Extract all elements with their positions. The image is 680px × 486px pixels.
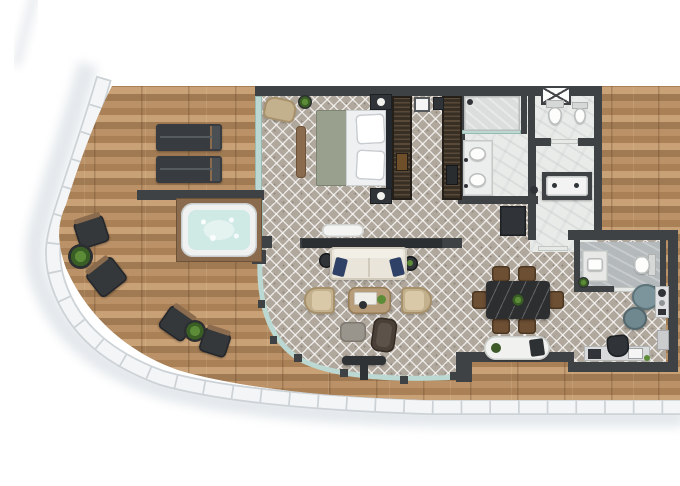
powder-plant [578, 277, 589, 288]
east-wall-upper [594, 86, 602, 238]
armchair-seat [405, 291, 424, 310]
powder-toilet [634, 253, 656, 277]
minibar-sink [659, 300, 665, 306]
dining-chair [492, 318, 510, 334]
toilet [546, 100, 564, 125]
hall-cabinet [500, 206, 526, 236]
dining-chair [548, 291, 564, 309]
bed-pillow [355, 149, 386, 180]
dining-chair [518, 318, 536, 334]
tub-faucet [552, 183, 557, 188]
ottoman [340, 322, 366, 342]
wardrobe-row [442, 96, 462, 200]
wardrobe-drawers [447, 166, 457, 184]
living-sw-corner-wall [456, 352, 472, 382]
tv-bench [322, 224, 364, 237]
east-wall-lower [668, 238, 678, 372]
nightstand [370, 94, 392, 110]
desk-monitor [588, 349, 601, 359]
armchair [401, 287, 432, 314]
bathtub [546, 176, 588, 196]
bidet [572, 102, 588, 125]
sink [469, 173, 486, 187]
wc-door-threshold [551, 139, 578, 144]
wardrobe-drawers [397, 154, 407, 170]
dining-chair [518, 266, 536, 282]
sun-lounger [156, 124, 222, 151]
kettle [658, 289, 666, 297]
printer [628, 348, 643, 359]
hot-tub-shell [181, 203, 257, 257]
storage-box [414, 97, 430, 112]
right-wing-south-wall [568, 362, 678, 372]
sofa-seat-split [368, 258, 370, 277]
sofa-pillow [389, 257, 405, 277]
glass-post [270, 336, 277, 344]
media-console [302, 239, 442, 247]
faucet [464, 184, 468, 188]
shower-head [467, 99, 473, 105]
hot-tub-water [188, 210, 250, 250]
bedroom-bench [296, 126, 306, 178]
bidet-bowl [574, 108, 586, 124]
lounge-chair-cushion [375, 322, 392, 348]
desk-plant [644, 355, 650, 361]
wardrobe-row [392, 96, 412, 200]
storage-box [433, 97, 444, 110]
bathroom-stool [530, 186, 538, 194]
swivel-chair [623, 307, 647, 330]
powder-east-wall [660, 240, 666, 292]
sofa-back-cushions [334, 249, 403, 258]
bedroom-glass-wall [255, 96, 262, 192]
daybed-cushion [529, 338, 545, 357]
faucet [464, 158, 468, 162]
wall-shelf [657, 330, 669, 350]
dining-chair [492, 266, 510, 282]
armchair [304, 287, 335, 314]
table-lamp [377, 98, 385, 106]
terrace-plant-table [184, 320, 206, 342]
sink [469, 147, 486, 161]
wc-west-wall [528, 96, 535, 144]
pedestal-table-stem [360, 365, 368, 380]
glass-post [258, 300, 265, 308]
bedroom-plant [298, 95, 312, 109]
minibar [655, 286, 669, 318]
speaker-plant [407, 260, 413, 266]
minibar-tray [658, 309, 666, 315]
right-wing-north-wall [568, 230, 678, 240]
pedestal-table-top [342, 356, 386, 365]
bathtub-surround [542, 172, 592, 200]
bed-pillow [355, 113, 386, 144]
dining-centerpiece-plant [511, 293, 525, 307]
coffee-table-plant [377, 295, 386, 304]
shower-east-wall [521, 96, 527, 134]
glass-post [294, 354, 302, 362]
shower [464, 96, 520, 131]
nightstand [370, 188, 392, 204]
hot-tub-wood-frame [176, 198, 262, 262]
bed-blanket [316, 110, 348, 186]
sun-lounger [156, 156, 222, 183]
glass-post [400, 376, 408, 384]
sofa-pillow [332, 257, 348, 277]
terrace-plant-table [68, 244, 93, 269]
dining-table [486, 281, 550, 319]
toilet-bowl [548, 107, 562, 125]
glass-post [340, 369, 348, 377]
daybed [484, 336, 550, 360]
floor-plan-canvas [0, 0, 680, 486]
powder-sink [587, 258, 603, 271]
double-vanity [463, 140, 493, 196]
tub-faucet [574, 183, 579, 188]
coffee-table [348, 287, 391, 314]
hall-threshold [538, 246, 568, 251]
glass-post [450, 372, 458, 380]
sofa [330, 247, 407, 280]
armchair-seat [312, 291, 331, 310]
daybed-plant [491, 343, 501, 353]
coffee-table-cup [359, 301, 367, 309]
wc-south-wall-left [535, 138, 551, 146]
powder-toilet-bowl [634, 256, 650, 274]
double-bed [316, 110, 394, 186]
vanity-south-wall [458, 196, 538, 204]
table-lamp [377, 192, 385, 200]
